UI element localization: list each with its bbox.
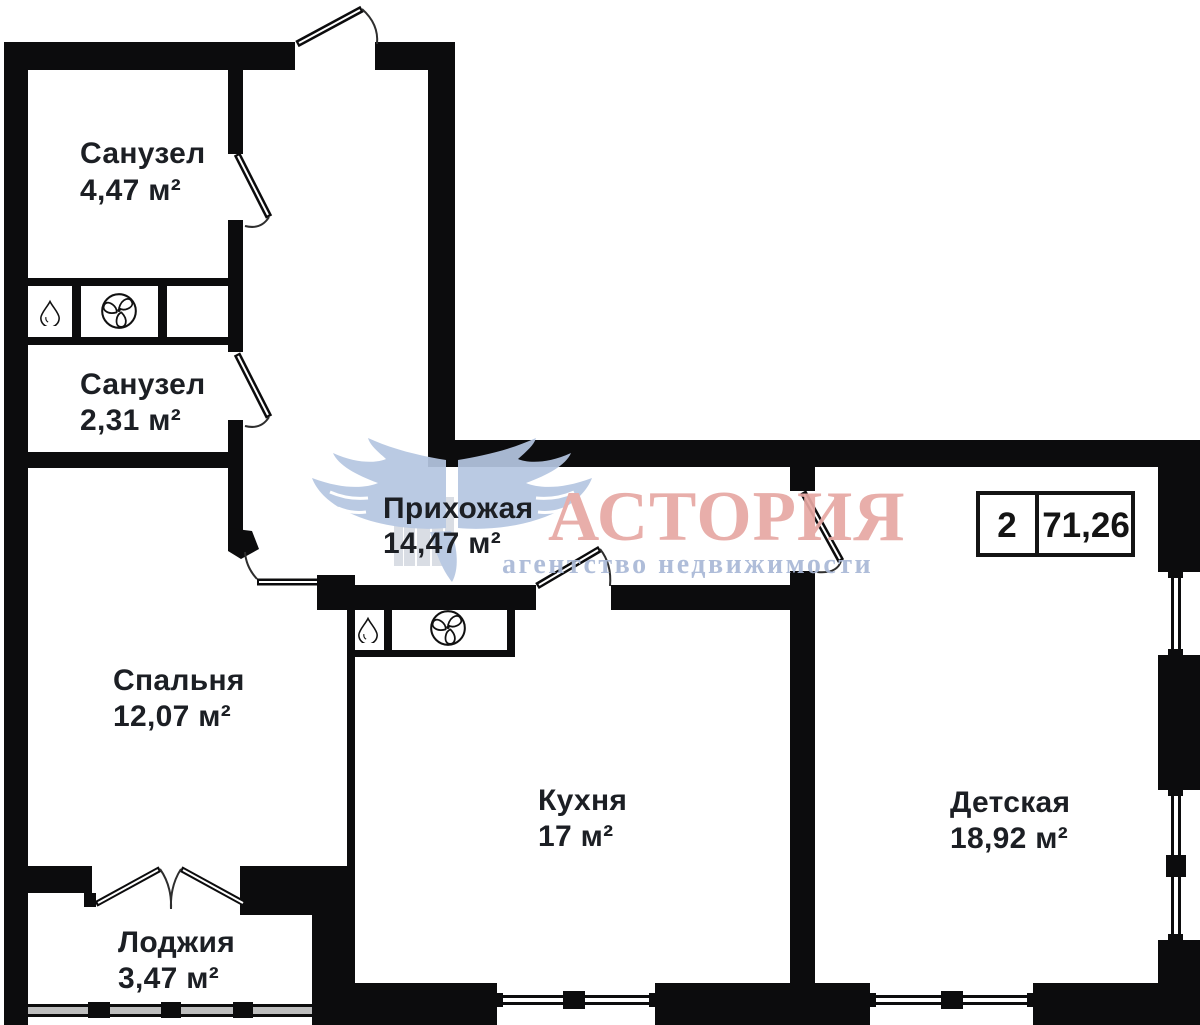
room-area: 17 м² <box>538 820 613 853</box>
room-area: 2,31 м² <box>80 404 181 437</box>
room-name: Прихожая <box>383 492 533 525</box>
room-label-sanuzel-1: Санузел 4,47 м² <box>80 137 205 207</box>
wall-segment <box>355 983 497 1025</box>
room-label-detskaya: Детская 18,92 м² <box>950 786 1070 855</box>
wall-segment <box>240 866 355 915</box>
wall-segment <box>428 70 455 442</box>
wall-segment <box>84 893 96 907</box>
wall-segment <box>348 650 515 657</box>
wall-segment <box>72 278 81 345</box>
room-label-spalnya: Спальня 12,07 м² <box>113 664 245 733</box>
room-name: Санузел <box>80 368 205 401</box>
wall-segment <box>28 278 228 286</box>
door-sanuzel-1 <box>237 154 269 227</box>
water-drop-icon <box>41 302 59 328</box>
room-area: 12,07 м² <box>113 700 231 733</box>
wall-segment <box>1158 655 1200 790</box>
wall-segment <box>228 220 243 352</box>
window-detskaya <box>870 991 1033 1009</box>
wall-segment <box>611 585 815 610</box>
wall-segment <box>1033 983 1200 1025</box>
info-badge-divider <box>1035 493 1039 555</box>
wall-segment <box>655 983 870 1025</box>
wall-segment <box>1158 467 1200 572</box>
wall-segment <box>347 585 355 868</box>
brand-name: АСТОРИЯ <box>548 478 906 556</box>
wall-segment <box>228 468 243 530</box>
wall-segment <box>790 571 815 1025</box>
wall-segment <box>28 337 228 345</box>
wall-segment <box>4 42 295 70</box>
door-spalnya <box>245 552 319 582</box>
water-drop-icon <box>359 619 377 645</box>
wall-segment <box>4 42 28 1025</box>
wall-segment <box>4 452 243 468</box>
room-area: 18,92 м² <box>950 822 1068 855</box>
ventilation-fan-icon <box>431 611 465 645</box>
loggia-glazing <box>28 1002 312 1018</box>
door-sanuzel-2 <box>237 354 269 427</box>
wall-segment <box>28 866 92 893</box>
room-name: Детская <box>950 786 1070 819</box>
room-area: 14,47 м² <box>383 527 501 560</box>
wall-segment <box>158 278 167 345</box>
room-name: Лоджия <box>118 926 235 959</box>
room-label-lodzhiya: Лоджия 3,47 м² <box>118 926 235 995</box>
badge-total-area: 71,26 <box>1042 506 1130 545</box>
ventilation-fan-icon <box>102 294 136 328</box>
wall-segment <box>384 610 392 650</box>
badge-rooms-count: 2 <box>997 506 1016 545</box>
floor-plan-canvas: АСТОРИЯ агентство недвижимости 2 71,26 С… <box>0 0 1200 1025</box>
wall-segment <box>228 70 243 154</box>
room-label-kuhnya: Кухня 17 м² <box>538 784 627 853</box>
brand-tagline: агентство недвижимости <box>502 549 873 580</box>
french-doors-loggia <box>96 869 245 909</box>
room-name: Спальня <box>113 664 245 697</box>
window-kitchen <box>497 991 655 1009</box>
floor-plan: АСТОРИЯ агентство недвижимости 2 71,26 С… <box>0 0 1200 1025</box>
wall-segment <box>375 42 455 70</box>
room-area: 4,47 м² <box>80 174 181 207</box>
window-right-lower <box>1166 790 1186 940</box>
info-badge: 2 71,26 <box>978 493 1133 555</box>
room-name: Санузел <box>80 137 205 170</box>
window-right-upper <box>1168 572 1183 655</box>
wall-segment <box>507 610 515 657</box>
wall-segment <box>228 528 259 559</box>
room-name: Кухня <box>538 784 627 817</box>
room-area: 3,47 м² <box>118 962 219 995</box>
entrance-door <box>297 9 377 44</box>
wall-segment <box>312 915 355 1025</box>
room-label-sanuzel-2: Санузел 2,31 м² <box>80 368 205 437</box>
